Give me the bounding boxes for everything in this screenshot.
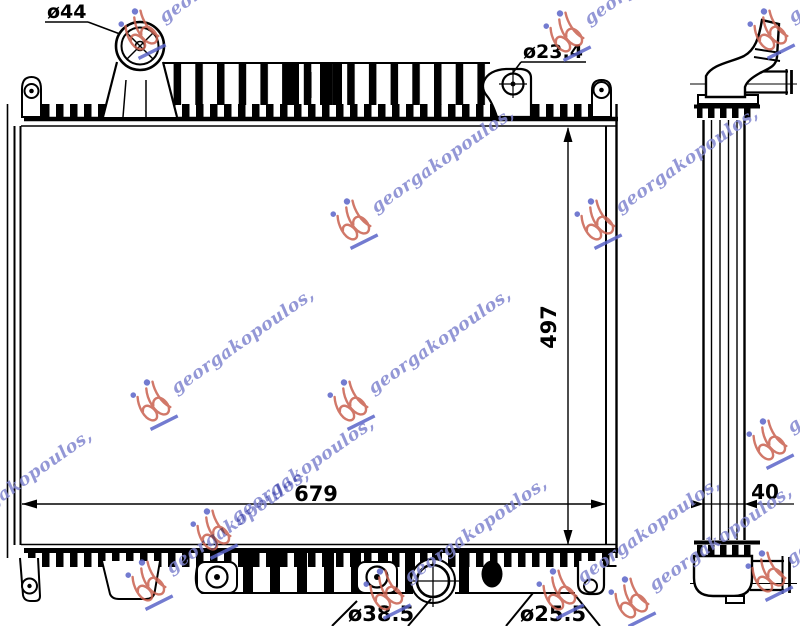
core-width-label: 679 bbox=[294, 482, 338, 506]
bottom-mount-hole-right bbox=[357, 562, 397, 593]
core-depth-label: 40 bbox=[751, 480, 779, 504]
bracket-hole-diameter-label: ø23.4 bbox=[523, 41, 583, 63]
filler-neck-diameter-label: ø44 bbox=[47, 1, 87, 23]
side-view bbox=[690, 20, 797, 603]
front-view bbox=[8, 22, 619, 626]
bottom-opening bbox=[482, 561, 503, 588]
bottom-left-bracket bbox=[102, 561, 160, 599]
drain-hole-diameter-label: ø38.5 bbox=[348, 602, 414, 626]
top-left-mount bbox=[22, 77, 41, 117]
side-bottom-tank bbox=[694, 556, 752, 603]
outlet-hole-diameter-label: ø25.5 bbox=[520, 602, 586, 626]
leader-filler-neck bbox=[45, 22, 120, 34]
top-right-mount bbox=[592, 80, 611, 117]
core-height-label: 497 bbox=[537, 305, 561, 349]
bottom-right-hook bbox=[578, 561, 604, 594]
bottom-left-foot bbox=[20, 558, 40, 601]
filler-neck bbox=[103, 22, 177, 117]
dimension-height bbox=[564, 127, 573, 545]
side-inlet-elbow-pipe bbox=[706, 20, 781, 97]
bottom-mount-hole-left bbox=[197, 562, 237, 593]
radiator-technical-drawing: ø44 ø23.4 497 679 40 ø38.5 ø25.5 georgak… bbox=[0, 0, 800, 626]
drawing-linework: ø44 ø23.4 497 679 40 ø38.5 ø25.5 bbox=[0, 0, 800, 626]
